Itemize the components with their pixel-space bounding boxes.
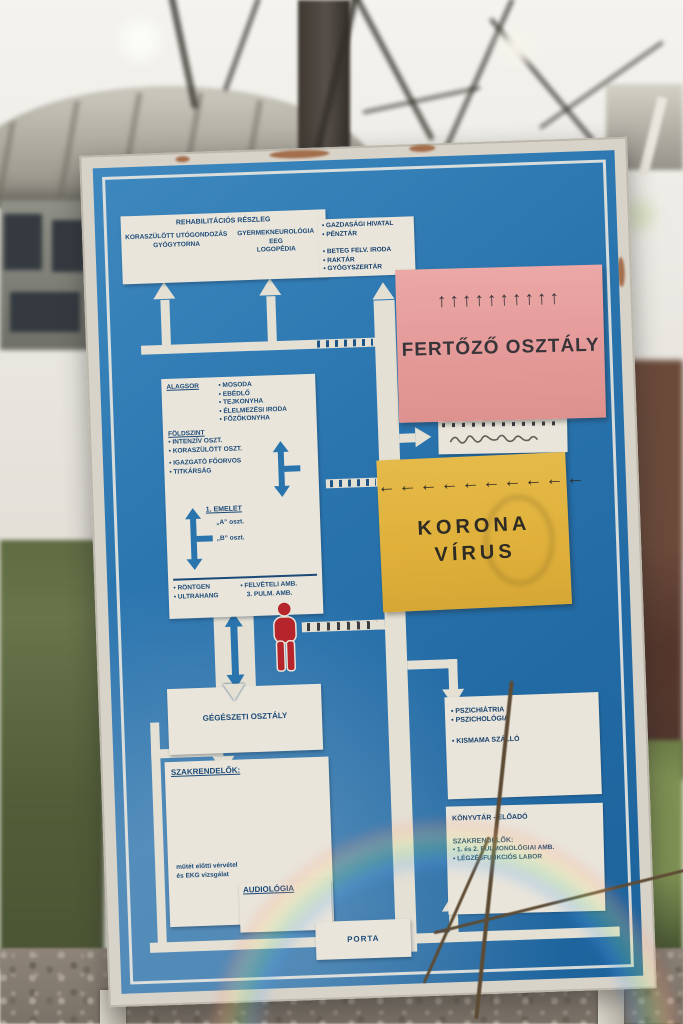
corridor-branch-psych-down [448,659,458,691]
porta-box: PORTA [315,919,411,960]
sign-blue-face: REHABILITÁCIÓS RÉSZLEG KORASZÜLÖTT UTÓGO… [93,150,644,994]
up-arrow-icon [153,282,176,300]
you-are-here-person-icon [269,600,301,673]
bokeh-light [120,20,160,60]
corridor-arrow-shaft [160,300,171,350]
floors-box: ALAGSOR MOSODA EBÉDLŐ TEJKONYHA ÉLELMEZÉ… [161,374,323,619]
fertozo-osztaly-sign: ↑↑↑↑↑↑↑↑↑↑ FERTŐZŐ OSZTÁLY [395,265,606,423]
szakrendelok-title: SZAKRENDELŐK: [171,763,323,778]
handwriting-scribble-icon [446,428,556,448]
smudge-mark [481,493,557,588]
up-arrow-icon [372,282,395,300]
imaging-item: ULTRAHANG [174,592,219,602]
gegeszet-label: GÉGÉSZETI OSZTÁLY [168,710,322,725]
korona-virus-sign: ←←←←←←←←←← KORONA VÍRUS [376,452,572,612]
down-arrow-icon [223,683,246,701]
psych-item: KISMAMA SZÁLLÓ [452,732,594,746]
hospital-direction-sign: REHABILITÁCIÓS RÉSZLEG KORASZÜLÖTT UTÓGO… [79,137,656,1008]
rust-spot [409,144,435,152]
psych-box: PSZICHIÁTRIA PSZICHOLÓGIA KISMAMA SZÁLLÓ [444,692,601,799]
window [4,214,42,270]
up-arrow-icon [259,278,282,296]
corridor-branch-right [399,433,415,443]
rehab-title: REHABILITÁCIÓS RÉSZLEG [124,213,323,229]
right-arrow-icon [415,427,432,448]
alagsor-label: ALAGSOR [166,382,219,426]
amb-item: 3. PULM. AMB. [247,589,298,599]
stairs-arrow-icon [180,507,216,570]
admin-services-list: GAZDASÁGI HIVATAL PÉNZTÁR BETEG FELV. IR… [318,216,416,277]
grass [0,540,104,970]
left-arrows-row: ←←←←←←←←←← [377,468,567,498]
audiologia-label: AUDIOLÓGIA [243,883,327,896]
porta-label: PORTA [316,933,411,946]
rust-spot [175,156,189,162]
sleeve-holes [442,421,560,427]
two-way-arrow-icon [220,612,249,689]
bokeh-light [500,30,534,64]
note-line: és EKG vizsgálat [176,870,238,881]
rehab-box: REHABILITÁCIÓS RÉSZLEG KORASZÜLÖTT UTÓGO… [120,209,327,284]
photo-scene: REHABILITÁCIÓS RÉSZLEG KORASZÜLÖTT UTÓGO… [0,0,683,1024]
up-arrows-row: ↑↑↑↑↑↑↑↑↑↑ [396,287,604,314]
library-box: KÖNYVTÁR - ELŐADÓ SZAKRENDELŐK: 1. és 2.… [446,803,606,915]
corridor-arrow-shaft [266,296,277,346]
emelet-item: „A” oszt. [216,518,244,527]
rust-spot [269,149,329,159]
alagsor-item: FŐZŐKONYHA [219,414,287,425]
stairs-arrow-icon [267,440,303,497]
window [10,292,80,332]
handwritten-note [438,418,568,454]
library-title: KÖNYVTÁR - ELŐADÓ [452,811,597,824]
fertozo-osztaly-label: FERTŐZŐ OSZTÁLY [397,335,605,362]
emelet-item: „B” oszt. [217,534,245,543]
